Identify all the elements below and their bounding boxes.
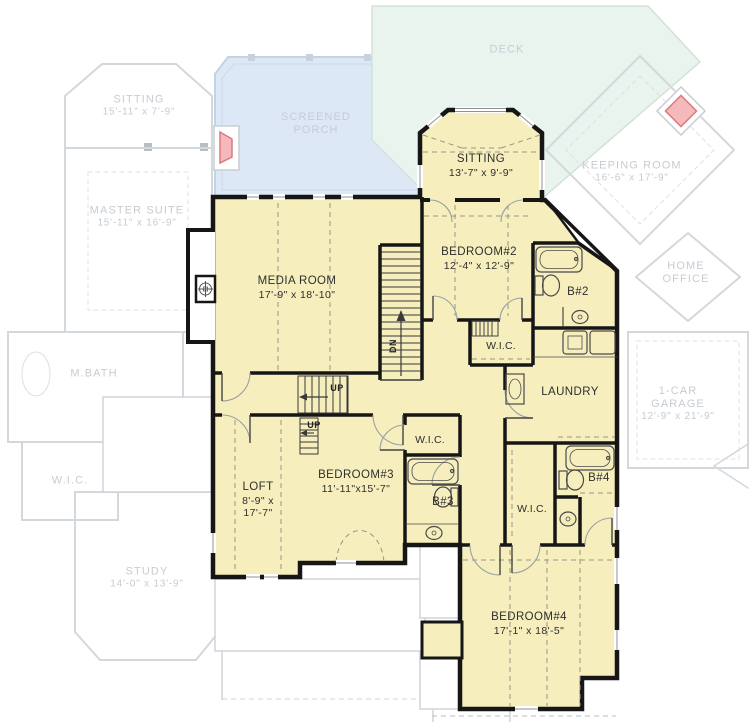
ghost-deck-label: DECK: [490, 44, 525, 57]
loft-label: LOFT 8'-9" x 17'-7": [242, 481, 274, 519]
ghost-wic-label: W.I.C.: [52, 475, 89, 488]
stairs-dn-label: DN: [388, 339, 398, 353]
wic2-label: W.I.C.: [486, 340, 516, 352]
ghost-mbath-label: M.BATH: [70, 368, 117, 381]
ghost-sitting-label: SITTING 15'-11" x 7'-9": [103, 94, 176, 119]
floor-plan-page: SITTING 15'-11" x 7'-9" MASTER SUITE 15'…: [0, 0, 750, 725]
bedroom3-label: BEDROOM#3 11'-11"x15'-7": [318, 469, 394, 495]
stairs-up-loft-label: UP: [307, 420, 321, 430]
ghost-master-suite-label: MASTER SUITE 15'-11" x 16'-9": [90, 205, 185, 230]
laundry-label: LAUNDRY: [541, 386, 599, 400]
wic4-label: W.I.C.: [517, 503, 547, 515]
bath4-label: B#4: [588, 472, 610, 486]
media-room-label: MEDIA ROOM 17'-9" x 18'-10": [258, 275, 337, 301]
wic3-label: W.I.C.: [415, 434, 445, 446]
bedroom4-label: BEDROOM#4 17'-1" x 18'-5": [491, 611, 567, 637]
ghost-study-label: STUDY 14'-0" x 13'-9": [110, 566, 184, 591]
fireplace-icon: [657, 87, 705, 135]
fireplace-icon: [214, 126, 239, 170]
stairs-up-hall-label: UP: [330, 383, 344, 393]
ghost-garage-label: 1-CAR GARAGE 12'-9" x 21'-9": [641, 385, 715, 423]
bath2-label: B#2: [567, 286, 589, 300]
bedroom2-label: BEDROOM#2 12'-4" x 12'-9": [441, 246, 517, 272]
sitting-label: SITTING 13'-7" x 9'-9": [449, 153, 513, 179]
ceiling-fan-icon: [196, 276, 215, 302]
ghost-home-office-label: HOME OFFICE: [663, 260, 710, 286]
ghost-keeping-room-label: KEEPING ROOM 16'-6" x 17'-9": [582, 160, 681, 185]
ghost-screened-porch-label: SCREENED PORCH: [281, 111, 351, 137]
bath3-label: B#3: [432, 496, 454, 510]
